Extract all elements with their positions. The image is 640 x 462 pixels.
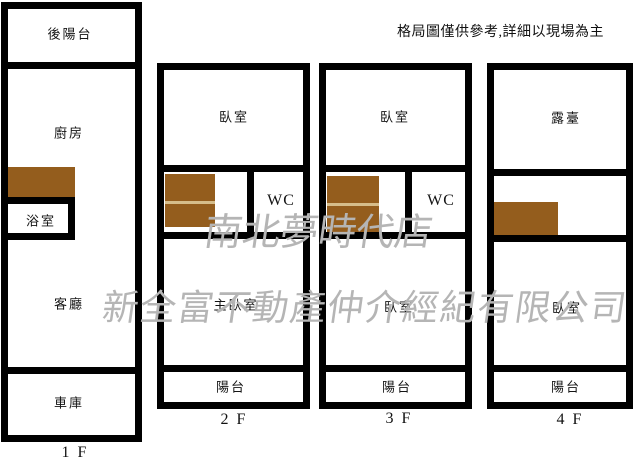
wall-balcony-top [164, 365, 303, 372]
room-bedroom-upper-label: 臥室 [380, 107, 410, 126]
watermark-company-name: 新全富不動產仲介經紀有限公司 [99, 279, 631, 331]
wall-living-garage-divider [8, 367, 135, 374]
room-rear-balcony-label: 後陽台 [47, 24, 92, 43]
room-living-room-label: 客廳 [54, 294, 84, 313]
bed-block [494, 202, 558, 235]
wall-balcony-top [494, 365, 626, 372]
room-kitchen-label: 廚房 [54, 123, 84, 142]
floorplan-1f: 後陽台 廚房 浴室 客廳 車庫 [1, 2, 142, 442]
bathroom-wall-top [8, 197, 75, 204]
room-balcony-label: 陽台 [551, 377, 581, 396]
disclaimer-text: 格局圖僅供參考,詳細以現場為主 [397, 21, 604, 41]
wall-terrace-bottom [494, 169, 626, 176]
room-bathroom-label: 浴室 [26, 211, 56, 230]
room-garage-label: 車庫 [54, 393, 84, 412]
room-balcony-label: 陽台 [216, 377, 246, 396]
room-terrace-label: 露臺 [551, 108, 581, 127]
wall-bedroom-bottom [326, 165, 465, 172]
kitchen-counter-block [8, 167, 75, 198]
floorplan-4f: 露臺 臥室 陽台 [487, 63, 633, 409]
floor-label-3f: 3 F [386, 410, 413, 428]
bathroom-wall-bottom [8, 233, 75, 240]
room-bedroom-label: 臥室 [219, 107, 249, 126]
floor-label-1f: 1 F [62, 444, 89, 462]
wall-bedroom-bottom [164, 165, 303, 172]
watermark-store-name: 南北夢時代店 [201, 201, 437, 256]
wall-mid-section-bottom [494, 235, 626, 242]
floorplan-image: 格局圖僅供參考,詳細以現場為主 後陽台 廚房 浴室 客廳 車庫 1 F 臥室 W… [0, 0, 640, 462]
floor-label-4f: 4 F [557, 411, 584, 429]
room-balcony-label: 陽台 [382, 377, 412, 396]
wall-balcony-top [326, 365, 465, 372]
wall-rear-balcony-bottom [8, 62, 135, 69]
floor-label-2f: 2 F [221, 411, 248, 429]
